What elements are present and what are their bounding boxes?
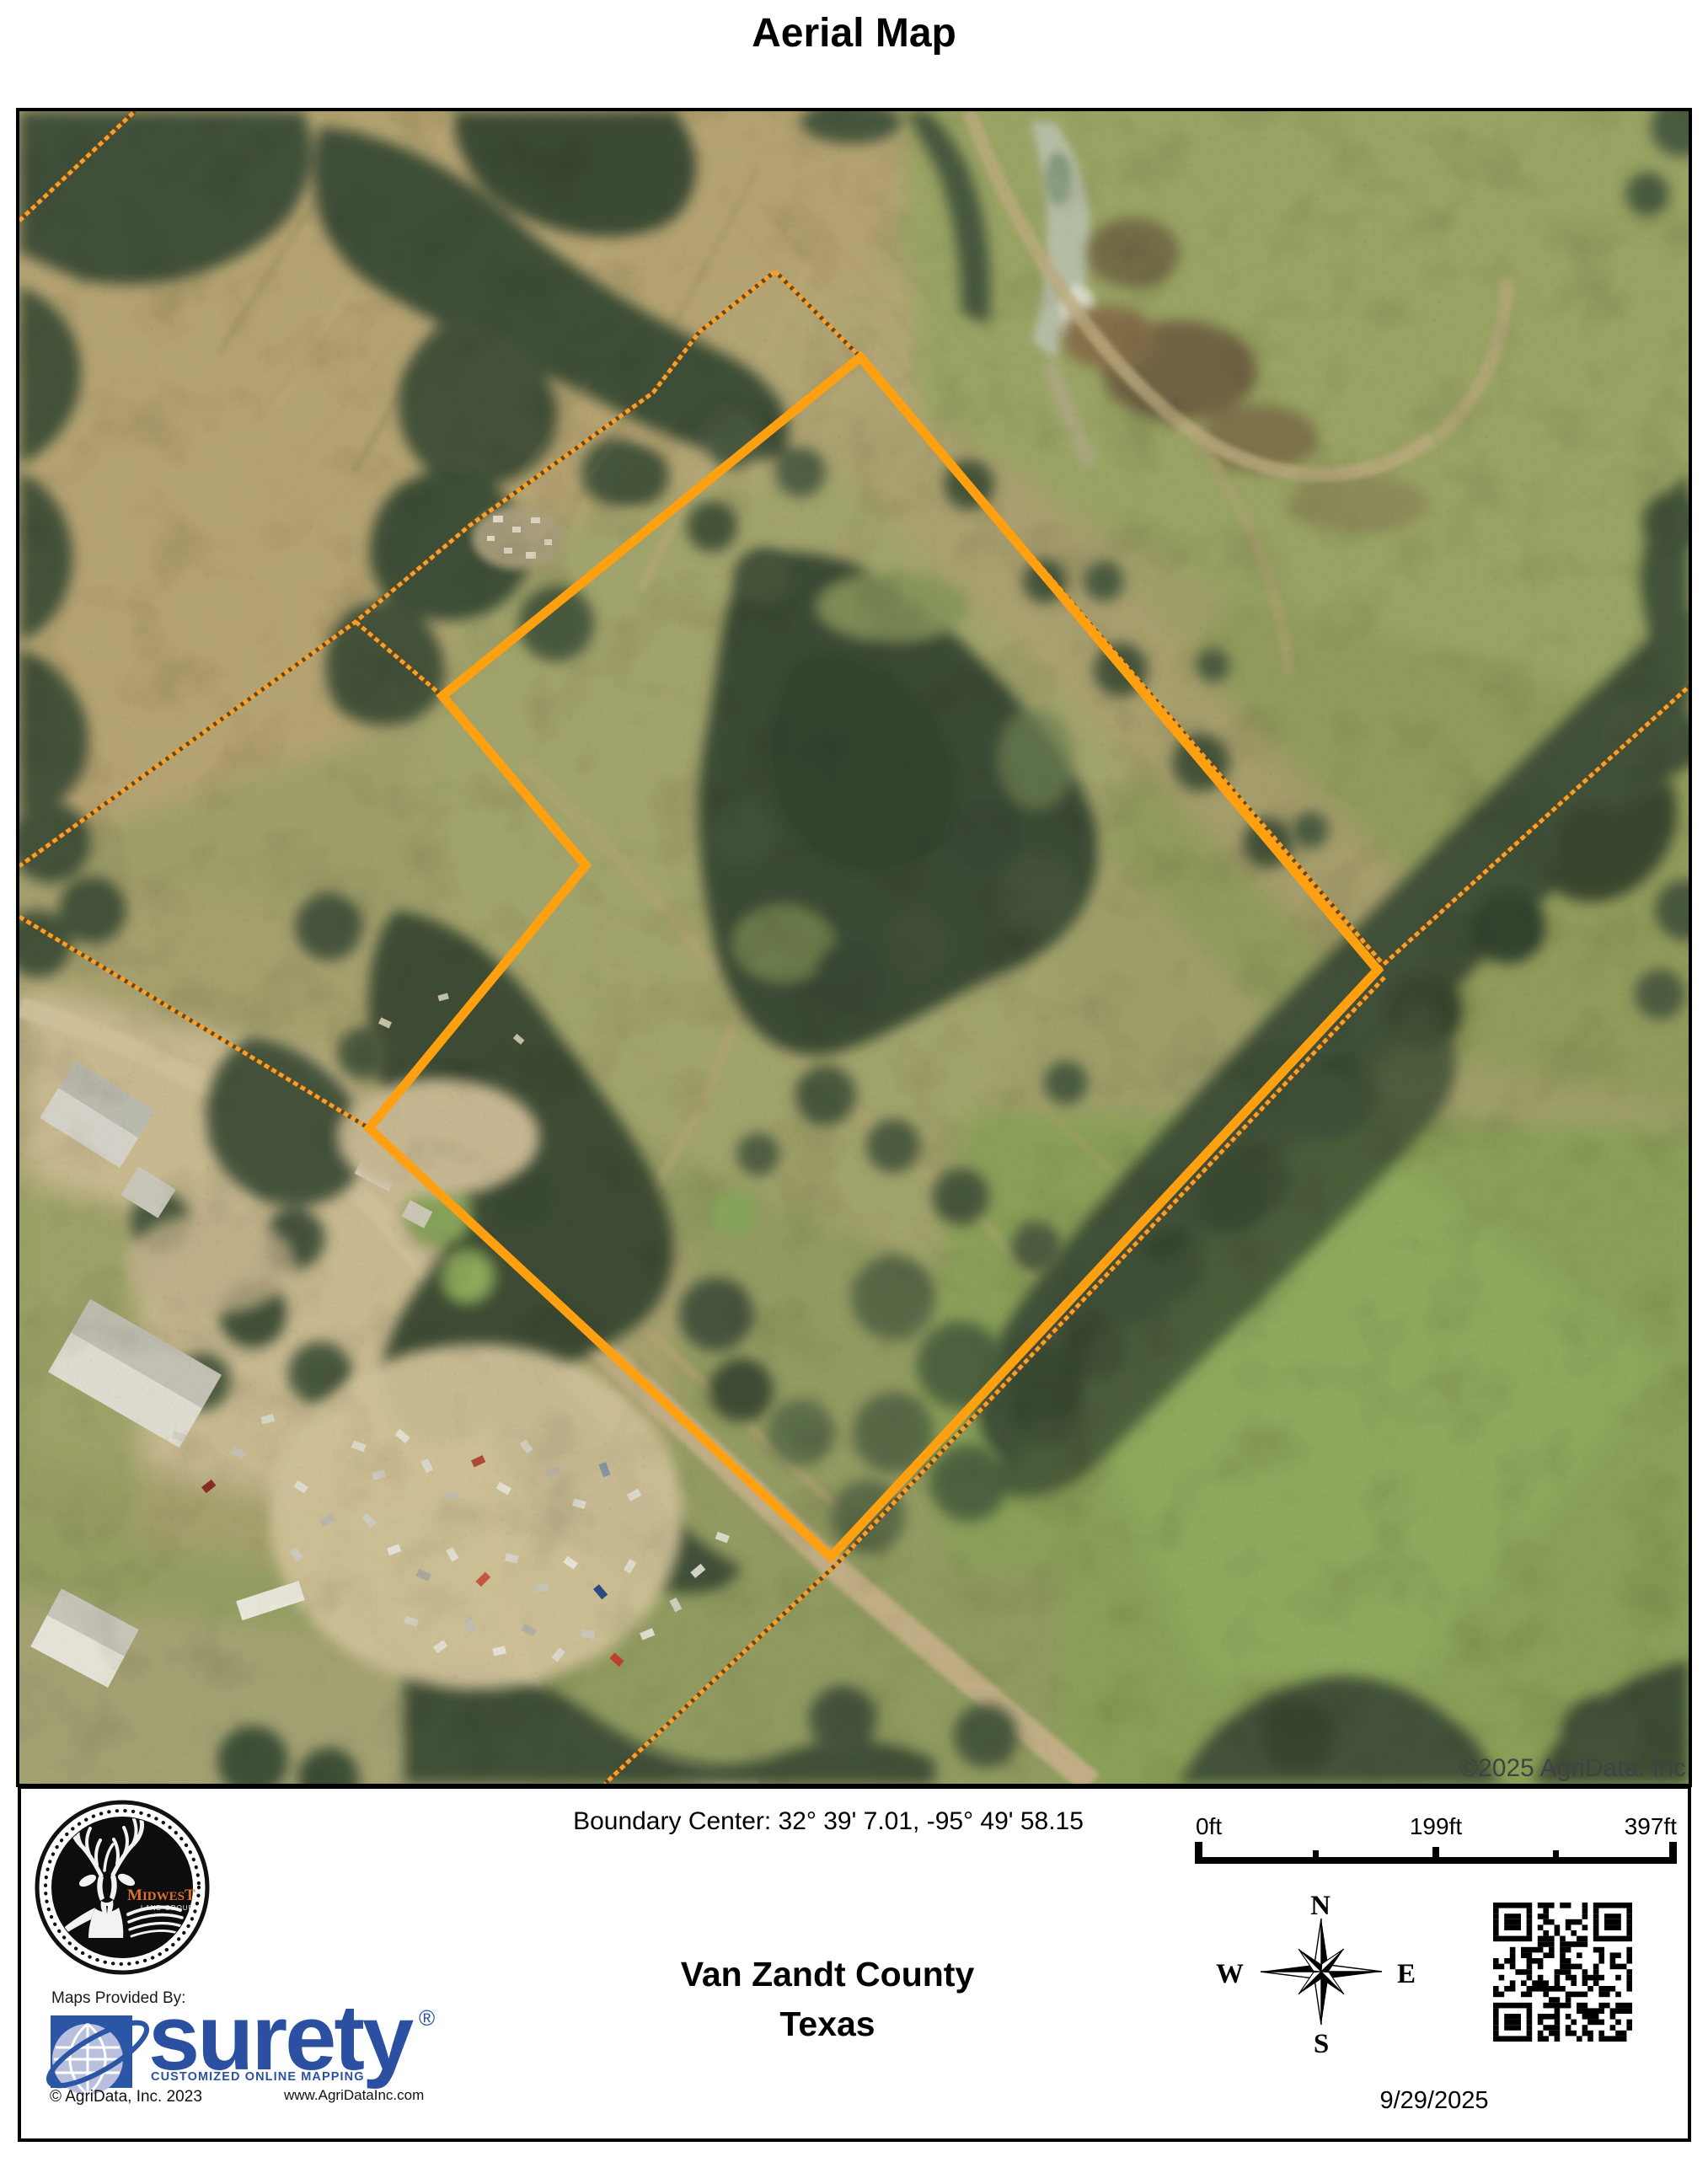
svg-text:www.AgriDataInc.com: www.AgriDataInc.com	[283, 2087, 424, 2103]
svg-text:0ft: 0ft	[1196, 1813, 1222, 1839]
svg-text:N: N	[1310, 1891, 1331, 1921]
svg-text:®: ®	[419, 2005, 435, 2031]
svg-text:199ft: 199ft	[1410, 1813, 1462, 1839]
svg-text:CUSTOMIZED ONLINE MAPPING: CUSTOMIZED ONLINE MAPPING	[151, 2070, 365, 2084]
svg-text:W: W	[1216, 1959, 1244, 1989]
svg-text:Van Zandt County: Van Zandt County	[681, 1955, 975, 1994]
svg-text:Texas: Texas	[779, 2004, 875, 2043]
svg-text:MIDWEST: MIDWEST	[127, 1887, 195, 1904]
svg-text:©2025 AgriData. Inc.: ©2025 AgriData. Inc.	[1459, 1754, 1689, 1782]
svg-text:397ft: 397ft	[1625, 1813, 1677, 1839]
svg-text:Boundary Center: 32° 39' 7.01,: Boundary Center: 32° 39' 7.01, -95° 49' …	[573, 1807, 1084, 1835]
svg-text:LAND GROUP: LAND GROUP	[141, 1904, 194, 1912]
svg-text:© AgriData, Inc. 2023: © AgriData, Inc. 2023	[50, 2088, 202, 2106]
svg-text:E: E	[1397, 1959, 1416, 1989]
svg-text:S: S	[1314, 2029, 1329, 2059]
svg-text:9/29/2025: 9/29/2025	[1379, 2087, 1488, 2114]
